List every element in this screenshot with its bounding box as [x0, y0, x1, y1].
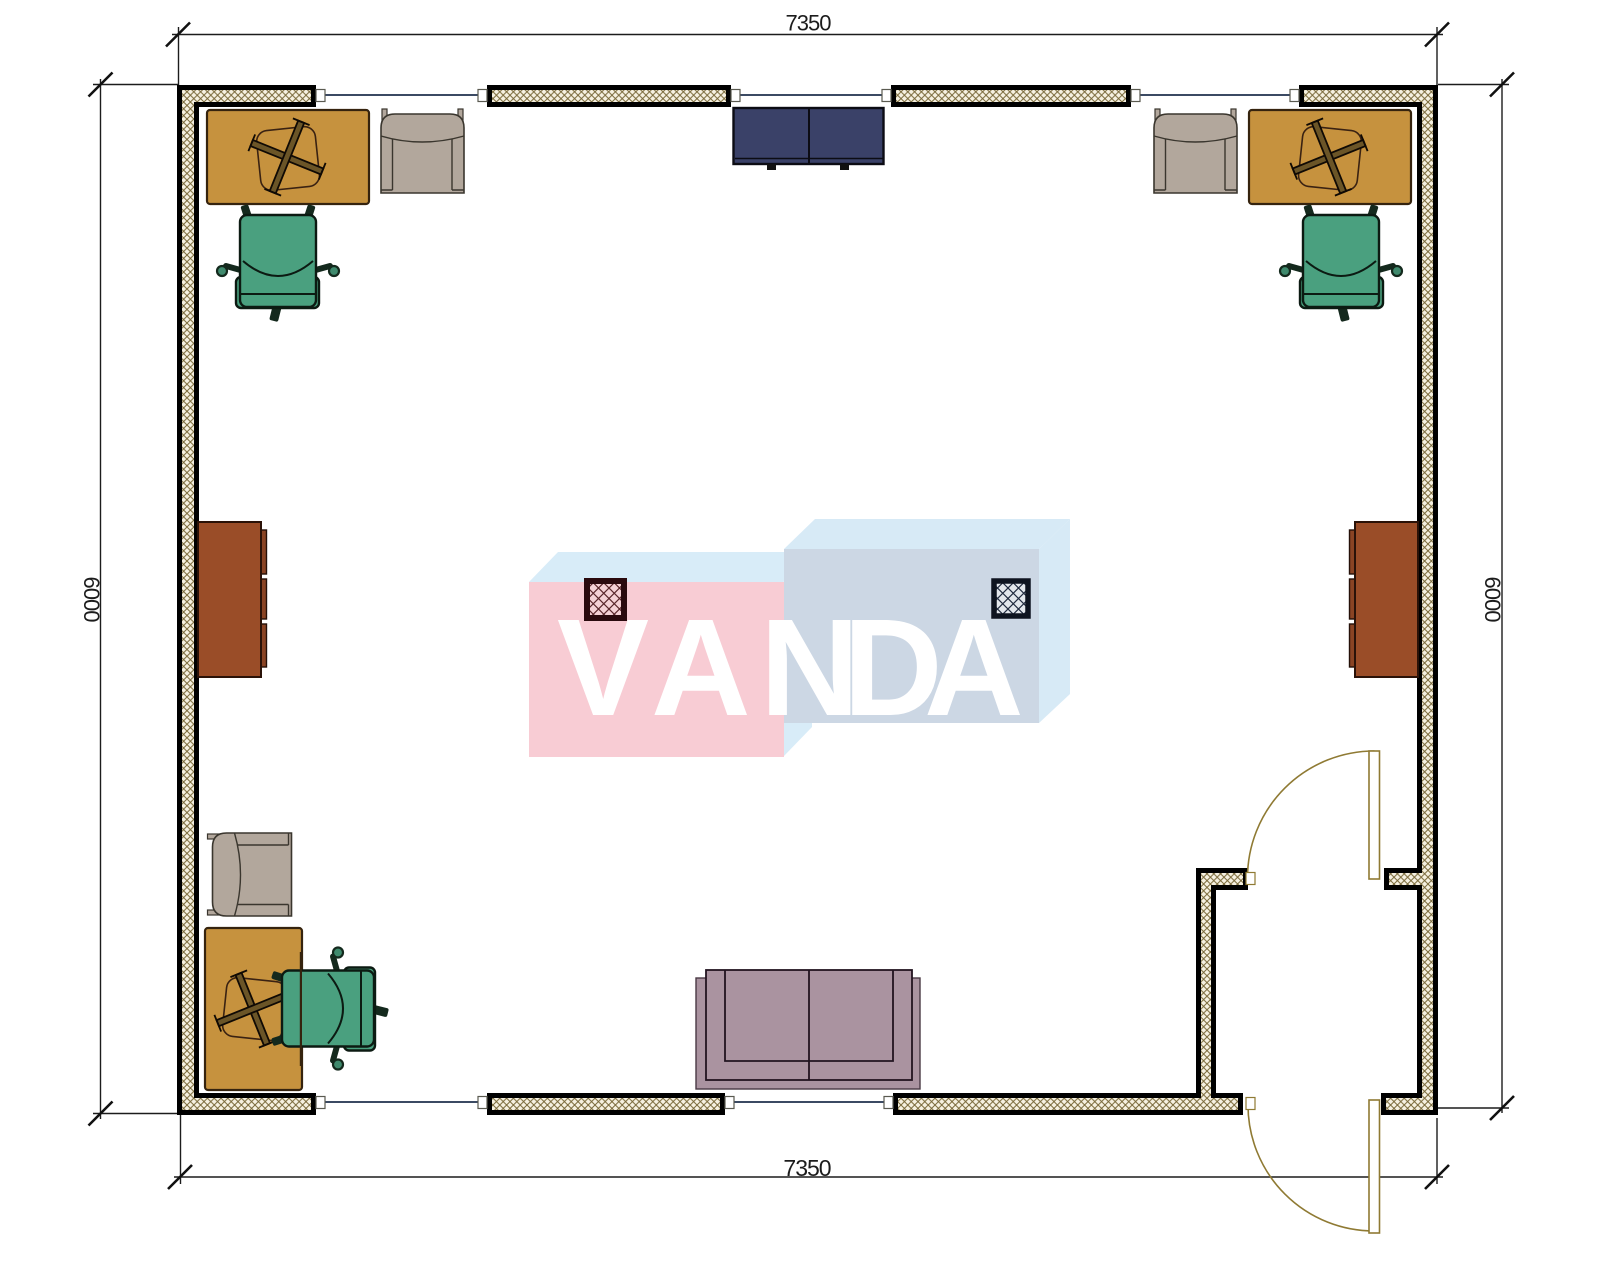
svg-text:7350: 7350: [783, 1155, 830, 1181]
svg-text:6000: 6000: [1480, 577, 1505, 623]
svg-text:VANDA: VANDA: [557, 591, 1024, 745]
svg-text:6000: 6000: [79, 577, 104, 623]
svg-text:7350: 7350: [786, 11, 832, 36]
